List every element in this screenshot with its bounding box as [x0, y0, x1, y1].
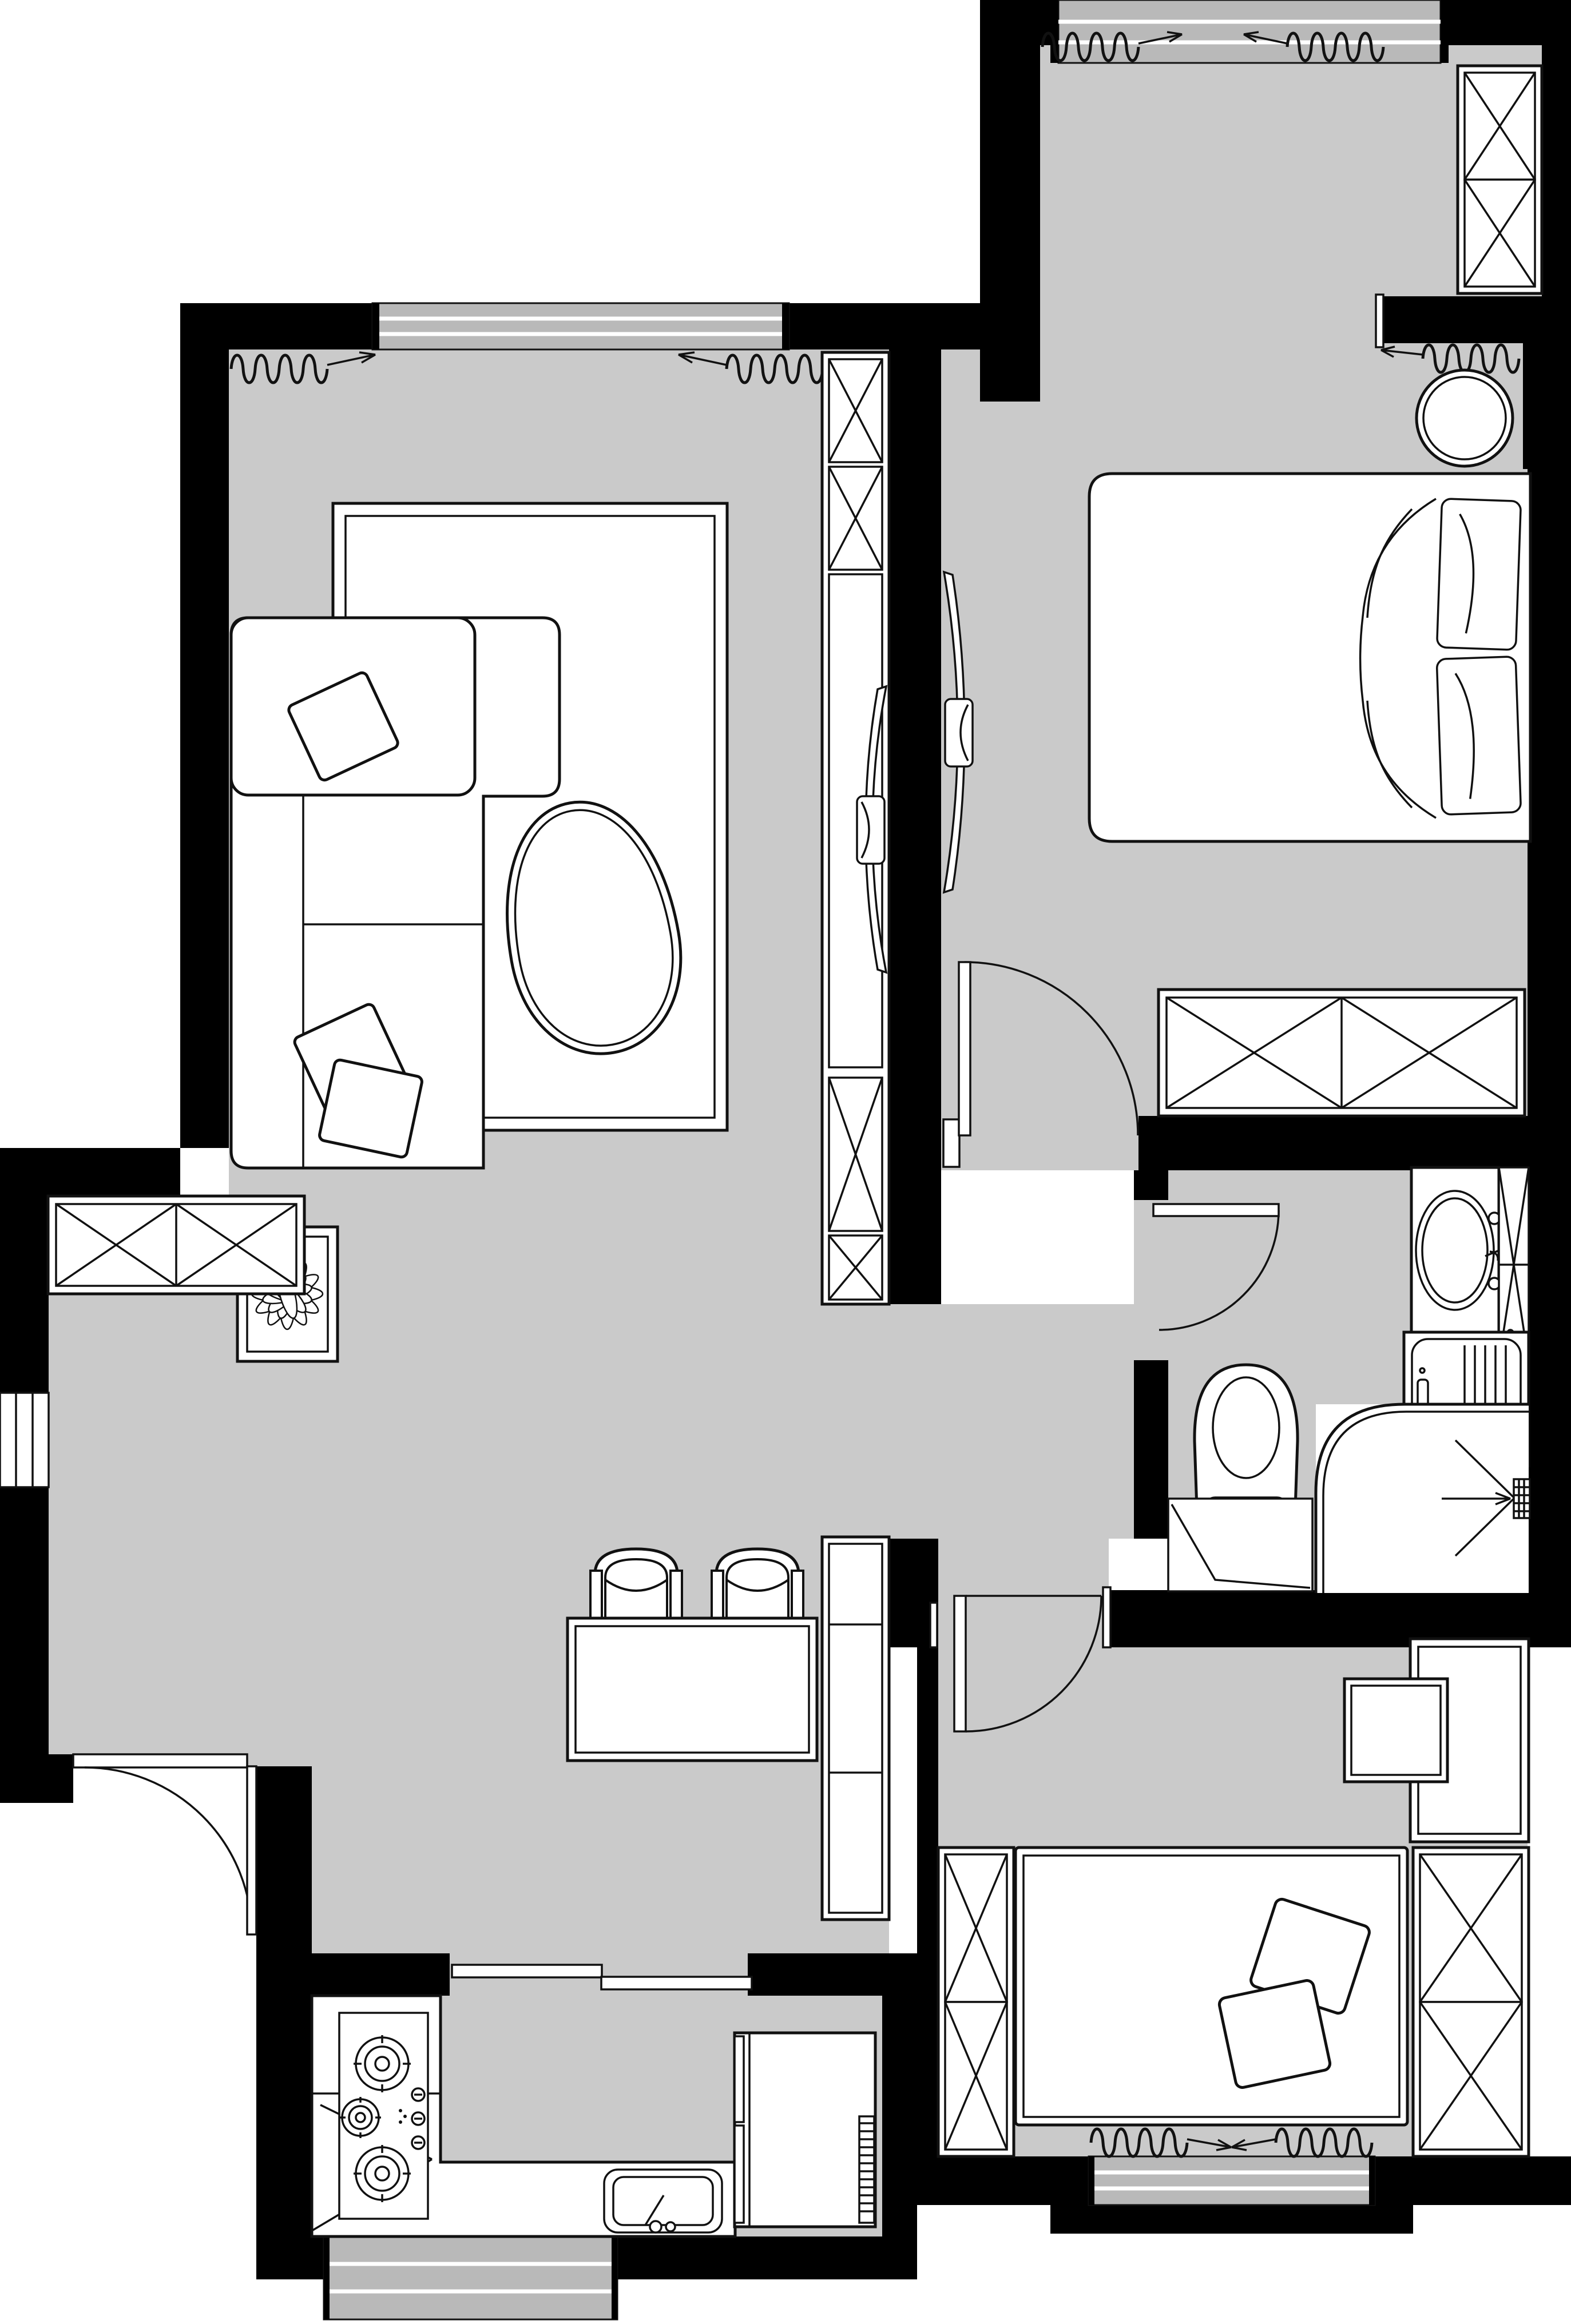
bedroom1-balcony-window: [1050, 0, 1449, 63]
round-stool: [1417, 370, 1513, 466]
storage-column-dining: [822, 1537, 889, 1920]
bed1-pillow: [1437, 499, 1521, 650]
dresser-bedroom1: [1159, 990, 1525, 1116]
kitchen-sink: [604, 2170, 722, 2232]
refrigerator: [735, 2033, 875, 2227]
left-wall-lower: [0, 1487, 49, 1754]
bedroom1-bottom-wall: [1138, 1116, 1571, 1170]
wardrobe-bedroom2-left: [938, 1848, 1014, 2156]
bedroom2-bottom-window: [1089, 2156, 1375, 2205]
bedroom1-left-wall: [980, 0, 1040, 402]
bed-bedroom1: [1089, 474, 1530, 841]
top-right-corner-wall: [1441, 0, 1571, 45]
left-wall-window: [0, 1393, 49, 1487]
entry-bump-wall: [0, 1754, 73, 1803]
right-wall-lower: [1528, 469, 1571, 1593]
tv-cabinet-column: [822, 352, 889, 1304]
bed2-pillow: [1218, 1979, 1331, 2088]
bedroom2-west-wall: [917, 1647, 938, 2156]
gas-cooktop: [339, 2013, 428, 2219]
floor-plan-page: [0, 0, 1571, 2324]
bath-pillar-top: [1134, 1170, 1168, 1200]
bed-bedroom2: [1015, 1848, 1407, 2125]
right-wall-upper: [1542, 45, 1571, 297]
kitchen-bottom-window: [324, 2236, 617, 2319]
kitchen-right-wall: [882, 1953, 917, 2279]
wardrobe-bedroom2-right: [1413, 1848, 1529, 2156]
kitchen-top-wall-left: [312, 1953, 450, 1996]
left-wall-upper: [0, 1196, 49, 1393]
corridor-floor: [889, 1304, 1134, 1539]
dining-chair: [712, 1549, 803, 1619]
bedroom1-door-bump: [917, 1119, 937, 1163]
kitchen-left-wall: [256, 1766, 312, 2279]
bed1-pillow: [1437, 657, 1521, 815]
living-top-window: [372, 303, 789, 349]
hall-horizontal-wall: [0, 1148, 180, 1196]
shower: [1316, 1404, 1530, 1593]
bathroom-doorway-floor: [1134, 1200, 1168, 1360]
dining-table: [568, 1618, 817, 1761]
bedroom1-side-window-jamb: [1376, 295, 1383, 347]
dining-chair: [590, 1549, 682, 1619]
sofa-pillow: [319, 1059, 423, 1158]
right-wall-mid: [1523, 296, 1571, 469]
floor-plan-canvas: [0, 0, 1571, 2324]
living-top-wall-left: [180, 303, 372, 349]
bedroom1-top-wall-left: [980, 0, 1058, 45]
vanity-counter: [1411, 1167, 1510, 1332]
shoe-closet: [48, 1196, 304, 1294]
living-top-wall-right: [789, 303, 980, 349]
bath-bench-counter: [1168, 1499, 1312, 1591]
bath-pillar-bottom: [1134, 1360, 1168, 1539]
wardrobe-bedroom1: [1458, 66, 1542, 293]
bedroom1-window-stub-wall: [1383, 296, 1523, 343]
desk-bedroom2: [1344, 1679, 1447, 1782]
living-left-wall: [180, 303, 229, 1148]
